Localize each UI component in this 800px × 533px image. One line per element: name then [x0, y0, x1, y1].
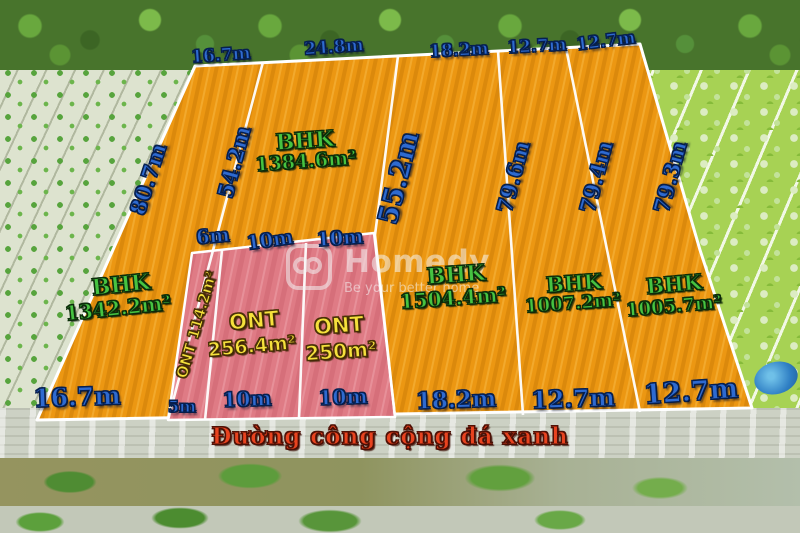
dim-bottom-5m: 5m [168, 399, 196, 415]
dim-bottom-plot3: 18.2m [415, 387, 496, 413]
dim-bottom-plot4: 12.7m [531, 386, 616, 413]
plot-ont3-area: 250m² [305, 339, 378, 364]
dim-top-plot5: 12.7m [575, 30, 636, 54]
plot2-area: 1384.6m² [255, 149, 357, 175]
plot-ont2-area: 256.4m² [207, 334, 297, 361]
land-subdivision-photo: Homedy Be your better home 16.7m24.8m18.… [0, 0, 800, 533]
dim-bottom-10m-a: 10m [222, 388, 272, 410]
plot3-area: 1504.4m² [399, 284, 507, 311]
dim-side-divider2: 55.2m [374, 129, 423, 227]
dim-side-left-edge: 80.7m [127, 141, 170, 217]
dim-top-plot1: 16.7m [191, 45, 251, 66]
dim-mid-10m-b: 10m [316, 228, 364, 250]
dim-mid-10m-a: 10m [246, 228, 295, 253]
dim-side-right-edge: 79.3m [650, 139, 689, 215]
plot-ont3-type: ONT [313, 314, 364, 338]
labels-layer: 16.7m24.8m18.2m12.7m12.7m80.7m54.2m55.2m… [0, 0, 800, 533]
dim-side-divider3: 79.6m [493, 139, 532, 215]
plot5-type: BHK [645, 271, 702, 297]
dim-top-plot2: 24.8m [304, 37, 364, 58]
plot1-area: 1342.2m² [64, 292, 172, 323]
dim-bottom-plot5: 12.7m [643, 375, 739, 409]
dim-side-divider4: 79.4m [576, 139, 615, 215]
dim-side-divider1: 54.2m [214, 124, 253, 200]
dim-mid-6m: 6m [196, 226, 231, 248]
dim-bottom-10m-b: 10m [318, 386, 368, 408]
plot-ont1-label: ONT 114.2m² [175, 270, 220, 380]
plot-ont2-type: ONT [228, 308, 279, 333]
dim-top-plot4: 12.7m [507, 37, 567, 57]
dim-top-plot3: 18.2m [429, 41, 489, 61]
dim-bottom-plot1: 16.7m [33, 383, 121, 411]
plot5-area: 1005.7m² [625, 294, 722, 320]
plot4-area: 1007.2m² [525, 292, 622, 317]
road-name-label: Đường công cộng đá xanh [170, 423, 610, 450]
